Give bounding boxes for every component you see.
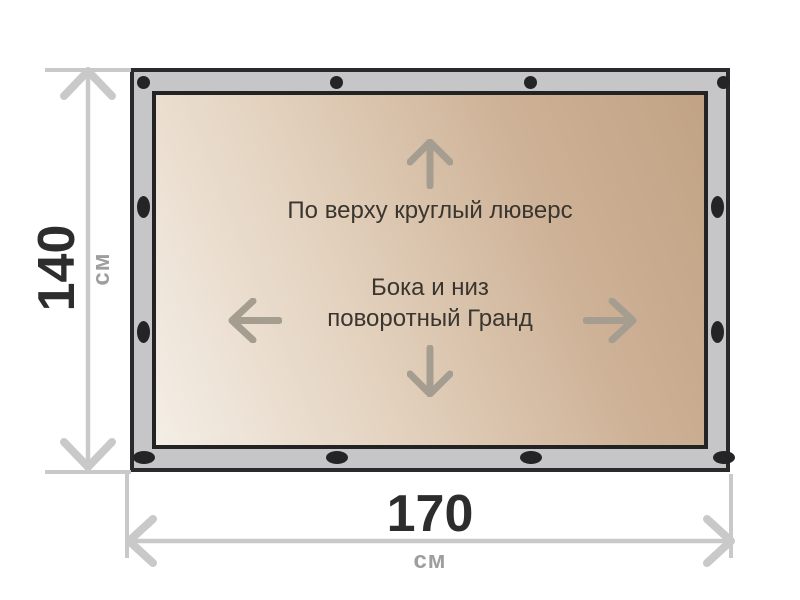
arrow-down-icon (407, 345, 453, 397)
grommet-icon (133, 451, 155, 464)
grommet-icon (524, 76, 537, 89)
grommet-icon (717, 76, 730, 89)
grommet-icon (326, 451, 348, 464)
grommet-icon (137, 321, 150, 343)
tarp-diagram: По верху круглый люверс Бока и низ повор… (0, 0, 800, 600)
arrow-right-icon (583, 298, 638, 343)
width-dimension-value: 170 (310, 486, 550, 542)
width-dimension-unit: см (380, 548, 480, 574)
top-fastening-note: По верху круглый люверс (156, 195, 704, 226)
grommet-icon (713, 451, 735, 464)
tarp-frame: По верху круглый люверс Бока и низ повор… (130, 68, 730, 472)
arrow-left-icon (227, 298, 282, 343)
grommet-icon (137, 196, 150, 218)
arrow-up-icon (407, 139, 453, 189)
grommet-icon (330, 76, 343, 89)
grommet-icon (711, 321, 724, 343)
grommet-icon (137, 76, 150, 89)
grommet-icon (520, 451, 542, 464)
grommet-icon (711, 196, 724, 218)
top-fastening-note-text: По верху круглый люверс (287, 197, 572, 224)
tarp-fabric: По верху круглый люверс Бока и низ повор… (152, 91, 708, 449)
height-dimension-unit: см (89, 229, 115, 309)
height-dimension-value: 140 (29, 188, 85, 348)
